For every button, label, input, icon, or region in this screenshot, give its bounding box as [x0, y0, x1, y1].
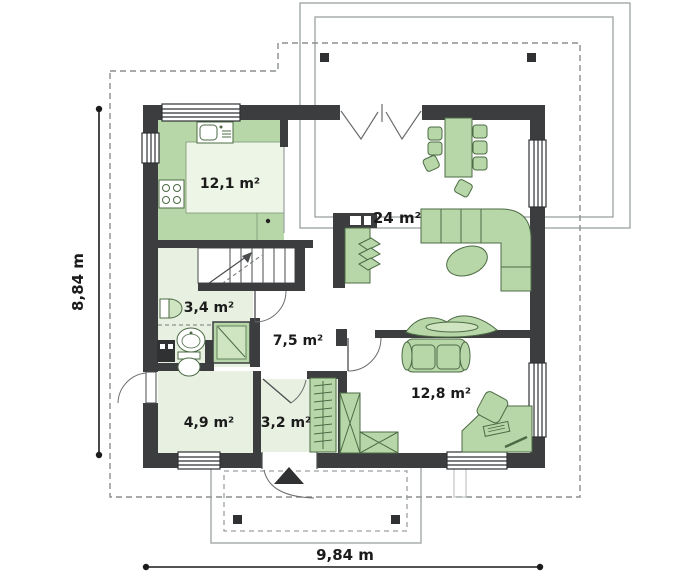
utility-area-label: 4,9 m²: [184, 415, 234, 431]
chair: [473, 141, 487, 154]
chimney-flue: [157, 340, 175, 362]
staircase: [198, 248, 295, 288]
plant-decoration: [406, 316, 497, 337]
sink-icon: [197, 122, 233, 143]
terrace-post-icon: [320, 53, 329, 62]
vestibule-wardrobe: [310, 378, 336, 452]
bathroom-door: [255, 291, 286, 322]
dining-table: [445, 118, 472, 177]
utility-bottom-window: [178, 452, 220, 469]
width-dimension-label: 9,84 m: [316, 546, 374, 564]
dimension-width: 9,84 m: [143, 546, 543, 570]
height-dimension-label: 8,84 m: [69, 253, 87, 311]
firewood-icon: [359, 238, 380, 270]
living-area-label: 24 m²: [373, 209, 421, 227]
entrance-arrow-icon: [274, 467, 304, 484]
chair: [428, 142, 442, 155]
kitchen-floor-marker: [266, 219, 270, 223]
kitchen-area-label: 12,1 m²: [200, 176, 260, 192]
living-right-window: [529, 140, 546, 207]
chair: [473, 125, 487, 138]
chair: [454, 179, 474, 198]
dining-set: [422, 118, 487, 198]
toilet-icon: [160, 299, 182, 318]
entrance-door: [262, 452, 317, 498]
floor-plan-canvas: 8,84 m 9,84 m: [0, 0, 700, 575]
toilet-2-icon: [178, 352, 200, 376]
terrace-post-icon: [527, 53, 536, 62]
wardrobe: [340, 393, 398, 453]
chair: [428, 127, 442, 140]
floor-plan-drawing: 8,84 m 9,84 m: [0, 0, 700, 575]
bedroom-bottom-window: [447, 452, 507, 469]
terrace-folding-door: [341, 104, 421, 139]
kitchen-left-window: [142, 133, 159, 163]
bedroom-area-label: 12,8 m²: [411, 386, 471, 402]
shower-icon: [213, 322, 250, 363]
hall-area-label: 7,5 m²: [273, 333, 323, 349]
kitchen-top-window: [162, 104, 240, 121]
utility-floor: [158, 371, 253, 453]
bathroom-area-label: 3,4 m²: [184, 300, 234, 316]
living-furniture: [421, 118, 531, 291]
washbasin-icon: [177, 328, 205, 352]
chair: [473, 157, 487, 170]
utility-exterior-door: [118, 372, 158, 403]
dimension-height: 8,84 m: [69, 106, 102, 458]
porch-post-icon: [233, 515, 242, 524]
porch-post-icon: [391, 515, 400, 524]
stove-icon: [159, 180, 184, 208]
bedroom-door: [348, 338, 381, 371]
coffee-table: [442, 241, 491, 282]
downspout: [454, 468, 466, 497]
porch-outline: [211, 466, 421, 543]
bedroom-sofa: [402, 339, 470, 372]
vestibule-area-label: 3,2 m²: [261, 415, 311, 431]
chair: [422, 155, 440, 173]
